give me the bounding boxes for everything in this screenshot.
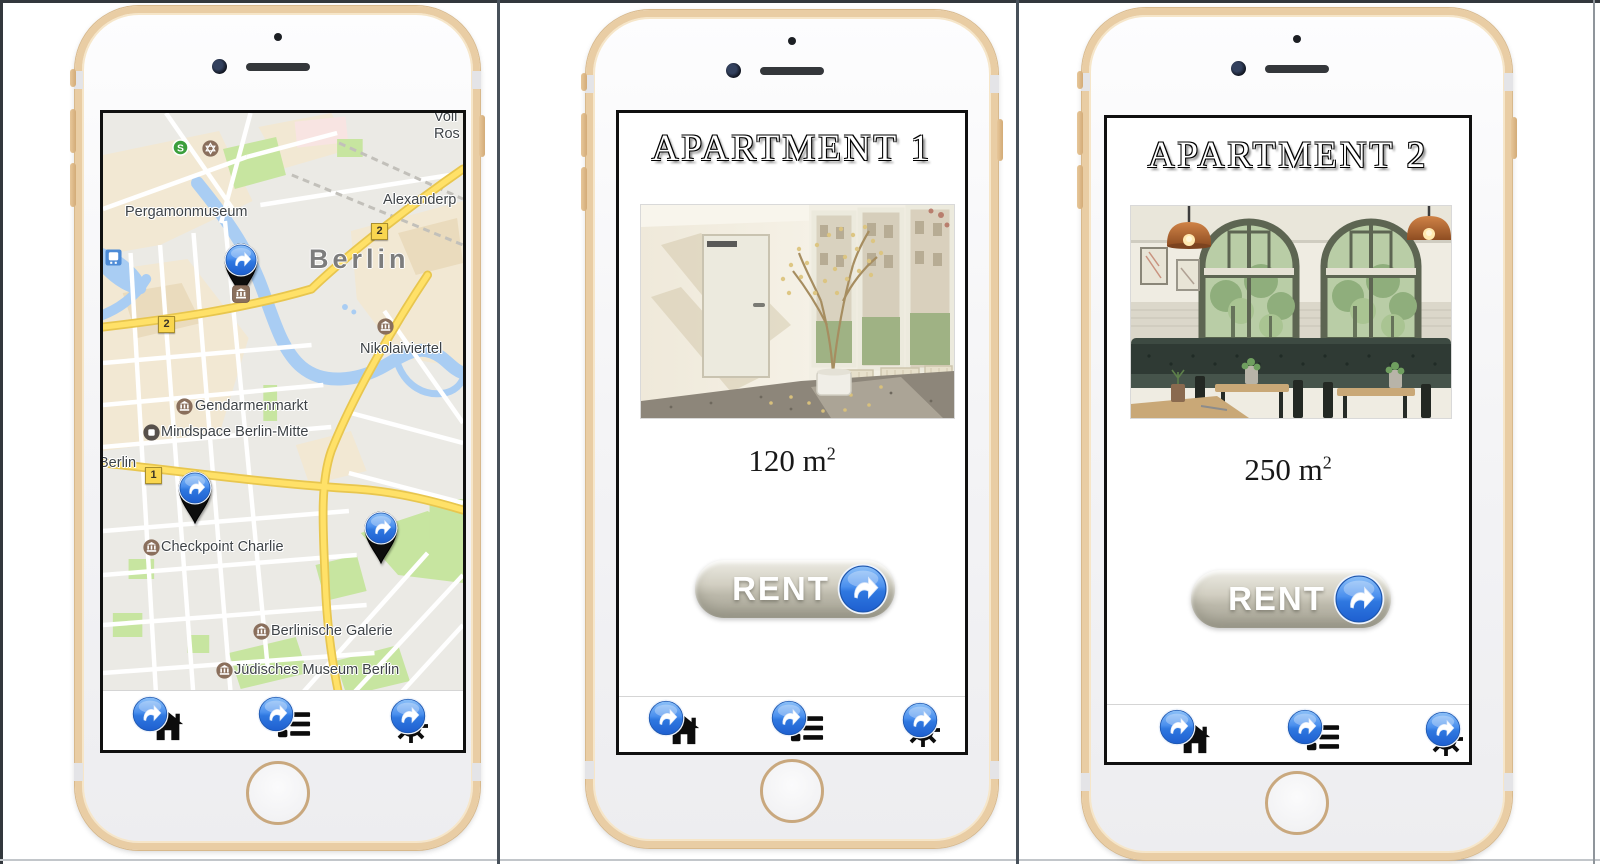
phone-apartment-1: APARTMENT 1 <box>586 10 998 848</box>
route-badge-1: 1 <box>145 467 162 484</box>
bottom-nav <box>1107 704 1469 762</box>
nav-settings-button[interactable] <box>1415 710 1471 758</box>
bottom-nav <box>103 690 463 750</box>
nav-home-button[interactable] <box>647 701 703 749</box>
map-label-berlinische-galerie: Berlinische Galerie <box>271 623 393 639</box>
phone-apartment-2: APARTMENT 2 <box>1082 8 1512 860</box>
map-canvas: Voll Ros Alexanderp Pergamonmuseum Berli… <box>103 113 463 696</box>
hotspot-icon[interactable] <box>901 701 939 739</box>
board-right-border <box>1593 0 1595 864</box>
apartment-area: 250 m2 <box>1107 452 1469 488</box>
earpiece-speaker <box>246 63 310 71</box>
map-label-gendarmenmarkt: Gendarmenmarkt <box>195 398 308 414</box>
volume-down-button <box>1077 165 1083 209</box>
map-label-nikolaiviertel: Nikolaiviertel <box>360 341 442 357</box>
hotspot-icon[interactable] <box>178 471 212 505</box>
apartment-photo <box>641 205 954 418</box>
home-button[interactable] <box>246 761 310 825</box>
hotspot-icon[interactable] <box>1424 710 1462 748</box>
mindspace-icon <box>143 424 160 441</box>
volume-up-button <box>581 113 587 157</box>
map-label-checkpoint-charlie: Checkpoint Charlie <box>161 539 284 555</box>
apartment-2-screen: APARTMENT 2 <box>1104 115 1472 765</box>
nav-home-button[interactable] <box>1158 710 1214 758</box>
volume-down-button <box>581 167 587 211</box>
nav-list-button[interactable] <box>257 697 313 745</box>
rent-button[interactable]: RENT <box>1191 570 1391 628</box>
earpiece-speaker <box>760 67 824 75</box>
gendarmenmarkt-icon <box>176 398 193 415</box>
juedisches-museum-icon <box>216 662 233 679</box>
mute-switch <box>70 69 76 87</box>
nav-settings-button[interactable] <box>892 701 948 749</box>
bottom-nav <box>619 696 965 752</box>
hotspot-icon[interactable] <box>1286 708 1324 746</box>
home-button[interactable] <box>760 759 824 823</box>
proximity-sensor <box>1293 35 1301 43</box>
map-label-mindspace: Mindspace Berlin-Mitte <box>161 424 308 440</box>
board-left-border <box>0 0 3 864</box>
apartment-photo <box>1131 206 1451 418</box>
hotspot-icon[interactable] <box>389 697 427 735</box>
museum-icon <box>232 285 250 303</box>
map-pin-apartment-2[interactable] <box>175 469 215 525</box>
panel-divider-2 <box>1016 0 1019 864</box>
map-label-ros: Ros <box>434 126 460 142</box>
apartment-1-screen: APARTMENT 1 <box>616 110 968 755</box>
phone-map: Voll Ros Alexanderp Pergamonmuseum Berli… <box>75 6 480 850</box>
square-exponent: 2 <box>827 444 836 464</box>
map-pin-apartment-1[interactable] <box>221 241 261 297</box>
proximity-sensor <box>274 33 282 41</box>
map-label-voll: Voll <box>434 113 457 125</box>
square-exponent: 2 <box>1323 453 1332 473</box>
power-button <box>1511 117 1517 159</box>
nav-list-button[interactable] <box>1286 710 1342 758</box>
map-label-alexanderplatz: Alexanderp <box>383 192 456 208</box>
map-label-pergamonmuseum: Pergamonmuseum <box>125 204 248 220</box>
map-screen: Voll Ros Alexanderp Pergamonmuseum Berli… <box>100 110 466 753</box>
map-label-berlin-small: Berlin <box>103 455 136 471</box>
cafe-room-illustration <box>1131 206 1451 418</box>
board-top-border <box>0 0 1600 3</box>
power-button <box>479 115 485 157</box>
nav-settings-button[interactable] <box>380 697 436 745</box>
hotspot-icon[interactable] <box>257 695 295 733</box>
hotspot-icon[interactable] <box>770 699 808 737</box>
apartment-area: 120 m2 <box>619 443 965 479</box>
checkpoint-charlie-icon <box>143 539 160 556</box>
route-badge-2: 2 <box>371 223 388 240</box>
earpiece-speaker <box>1265 65 1329 73</box>
map-pin-apartment-3[interactable] <box>361 509 401 565</box>
nav-home-button[interactable] <box>131 697 187 745</box>
volume-down-button <box>70 163 76 207</box>
hotspot-icon[interactable] <box>837 563 889 615</box>
mute-switch <box>581 73 587 91</box>
apartment-title: APARTMENT 1 <box>619 127 965 170</box>
hotspot-icon[interactable] <box>224 243 258 277</box>
map-label-juedisches-museum: Jüdisches Museum Berlin <box>234 662 399 678</box>
proximity-sensor <box>788 37 796 45</box>
prototype-board: Voll Ros Alexanderp Pergamonmuseum Berli… <box>0 0 1600 864</box>
front-camera <box>212 59 227 74</box>
hotspot-icon[interactable] <box>131 695 169 733</box>
front-camera <box>1231 61 1246 76</box>
synagogue-icon <box>202 140 219 157</box>
hotspot-icon[interactable] <box>1158 708 1196 746</box>
power-button <box>997 119 1003 161</box>
map-label-berlin-city: Berlin <box>309 244 410 275</box>
volume-up-button <box>70 109 76 153</box>
hotspot-icon[interactable] <box>1333 573 1385 625</box>
volume-up-button <box>1077 111 1083 155</box>
sbahn-icon <box>172 139 189 156</box>
berlinische-galerie-icon <box>253 623 270 640</box>
nav-list-button[interactable] <box>770 701 826 749</box>
front-camera <box>726 63 741 78</box>
home-button[interactable] <box>1265 771 1329 835</box>
hotspot-icon[interactable] <box>364 511 398 545</box>
panel-divider-1 <box>497 0 500 864</box>
mute-switch <box>1077 71 1083 89</box>
nikolaiviertel-museum-icon <box>377 318 394 335</box>
hotspot-icon[interactable] <box>647 699 685 737</box>
tram-stop-icon <box>105 249 122 266</box>
route-badge-2: 2 <box>158 316 175 333</box>
empty-room-illustration <box>641 205 954 418</box>
rent-button[interactable]: RENT <box>695 560 895 618</box>
apartment-title: APARTMENT 2 <box>1107 134 1469 177</box>
